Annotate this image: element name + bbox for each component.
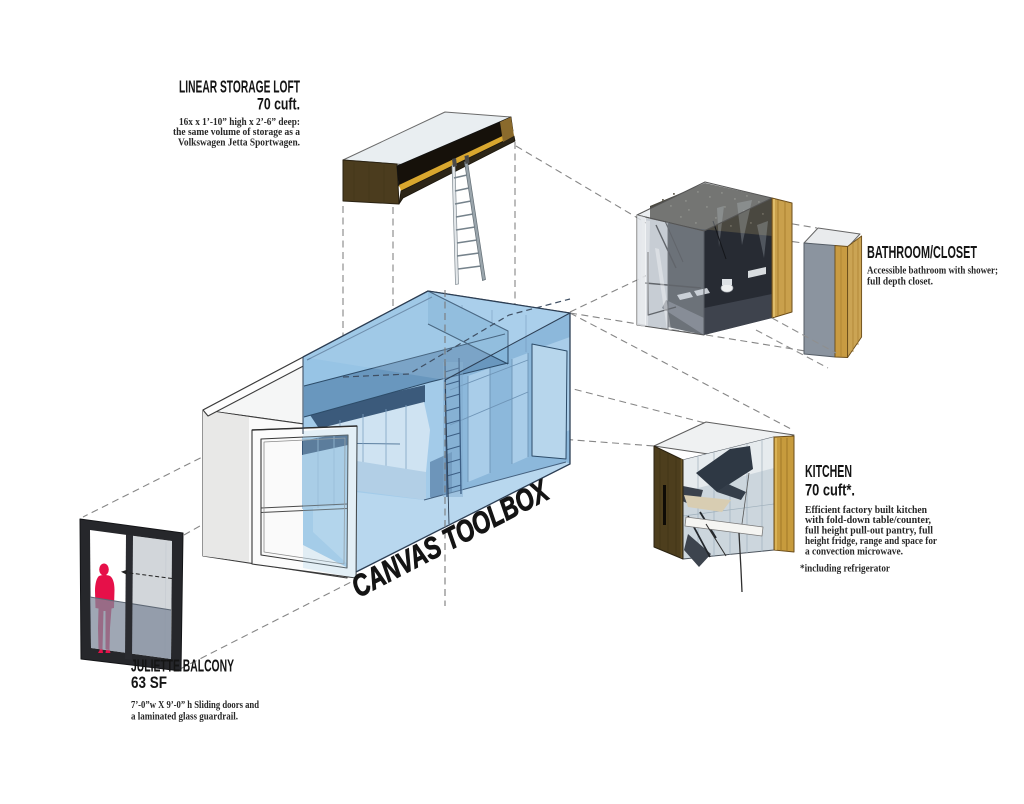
svg-text:7’-0”w X 9’-0” h Sliding door: 7’-0”w X 9’-0” h Sliding doors and xyxy=(131,700,259,711)
svg-text:KITCHEN: KITCHEN xyxy=(805,461,852,481)
svg-text:with fold-down table/counter,: with fold-down table/counter, xyxy=(805,515,931,526)
svg-text:Efficient factory built kitche: Efficient factory built kitchen xyxy=(805,505,927,516)
svg-text:63 SF: 63 SF xyxy=(131,674,167,692)
svg-text:LINEAR STORAGE LOFT: LINEAR STORAGE LOFT xyxy=(179,77,300,97)
svg-text:70 cuft*.: 70 cuft*. xyxy=(805,482,855,500)
svg-text:full height pull-out pantry, f: full height pull-out pantry, full xyxy=(805,526,933,537)
svg-text:70 cuft.: 70 cuft. xyxy=(257,96,300,114)
svg-text:Volkswagen Jetta Sportwagen.: Volkswagen Jetta Sportwagen. xyxy=(178,137,300,148)
svg-text:*including refrigerator: *including refrigerator xyxy=(800,564,890,575)
svg-text:height fridge, range and space: height fridge, range and space for xyxy=(805,536,937,547)
svg-text:full depth closet.: full depth closet. xyxy=(867,277,933,288)
svg-text:JULIETTE BALCONY: JULIETTE BALCONY xyxy=(131,656,234,676)
svg-text:a convection microwave.: a convection microwave. xyxy=(805,546,903,557)
svg-text:BATHROOM/CLOSET: BATHROOM/CLOSET xyxy=(867,242,977,262)
svg-text:Accessible bathroom with showe: Accessible bathroom with shower; xyxy=(867,266,998,277)
svg-text:a laminated glass guardrail.: a laminated glass guardrail. xyxy=(131,712,238,723)
